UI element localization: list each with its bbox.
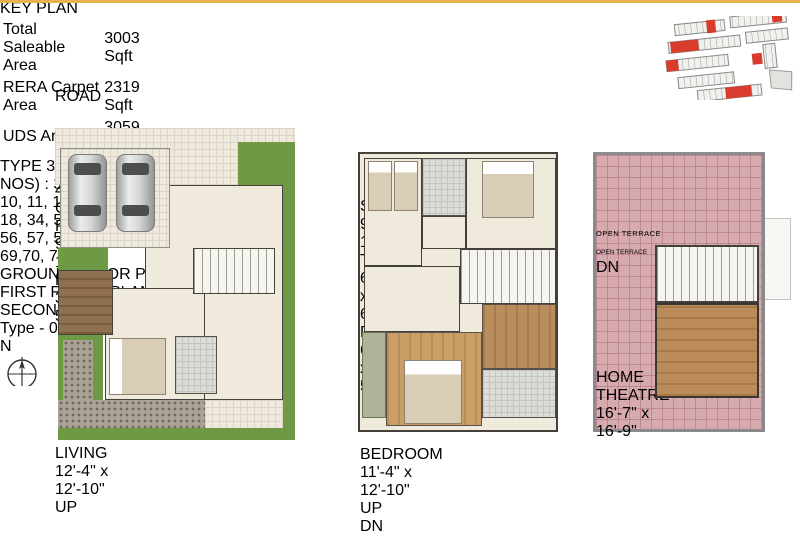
room-label-open-terrace: OPEN TERRACE xyxy=(596,223,688,241)
road-label: ROAD xyxy=(55,88,101,105)
second-floor-plan: OPEN TERRACE OPEN TERRACE DN HOME THEATR… xyxy=(593,152,765,432)
plant-icon xyxy=(596,155,613,172)
gravel-band xyxy=(58,400,205,428)
stairs-dn-label: DN xyxy=(596,259,618,277)
car-rear-window xyxy=(74,205,101,216)
toilet-area xyxy=(482,369,556,418)
bed-icon xyxy=(368,161,392,211)
car-icon xyxy=(116,154,155,232)
toilet-area xyxy=(175,336,217,394)
bed-icon xyxy=(109,338,166,395)
pergola-ledge xyxy=(763,218,791,300)
stairs xyxy=(655,245,759,303)
table-row: Total Saleable Area 3003 Sqft xyxy=(2,20,156,76)
room-label-living: LIVING 12'-4" x 12'-10" xyxy=(55,445,115,499)
stairs-dn-label: DN xyxy=(360,518,380,536)
compass-icon xyxy=(0,356,44,386)
first-floor-plan: STUDY 9'-6" x 12'-10" TOILET 6'-0" x 6'-… xyxy=(358,152,558,432)
floorplan-sheet: KEY PLAN Total Saleable Area 3003 Sqft R… xyxy=(0,0,800,537)
ground-floor-plan: ROAD 39'-4" 7'-3" 2'-6" 4'-11" CAR PORCH… xyxy=(55,88,295,445)
room-label-bedroom: BEDROOM 11'-4" x 12'-10" xyxy=(360,446,440,500)
dress-room xyxy=(482,304,556,369)
dress-room xyxy=(422,216,466,249)
open-deck-area xyxy=(58,270,113,335)
room-label-open-terrace: OPEN TERRACE xyxy=(596,241,658,259)
plant-icon xyxy=(596,172,613,189)
north-label: N xyxy=(0,338,44,356)
car-icon xyxy=(68,154,107,232)
sofa-icon xyxy=(596,277,622,299)
paved-walkway xyxy=(205,400,283,428)
car-windshield xyxy=(74,163,101,175)
stairs xyxy=(193,248,275,294)
lawn-patch xyxy=(58,248,108,270)
bed-icon xyxy=(404,360,462,424)
stairs xyxy=(460,249,556,304)
stairs-up-label: UP xyxy=(360,500,380,518)
sofa-icon xyxy=(596,323,622,345)
sofa-icon xyxy=(596,345,654,369)
gold-top-border xyxy=(0,0,800,3)
balcony-area xyxy=(362,332,386,418)
lawn-strip-top xyxy=(238,142,295,185)
stairs-up-label: UP xyxy=(55,499,75,517)
north-compass: N xyxy=(0,338,44,378)
sofa-icon xyxy=(596,299,654,323)
site-map xyxy=(664,16,798,100)
car-windshield xyxy=(122,163,149,175)
lawn-strip-right xyxy=(281,185,295,430)
bed-icon xyxy=(482,161,534,218)
toilet-area xyxy=(422,158,466,216)
road-band: ROAD xyxy=(55,88,295,128)
home-theatre-room xyxy=(655,303,759,398)
plant-icon xyxy=(596,206,613,223)
family-room xyxy=(364,266,460,332)
dining-table-icon xyxy=(55,517,101,537)
car-rear-window xyxy=(122,205,149,216)
area-value: 3003 Sqft xyxy=(103,20,156,76)
plant-icon xyxy=(596,189,613,206)
lawn-band-bottom xyxy=(58,428,295,440)
bed-icon xyxy=(394,161,418,211)
area-label: Total Saleable Area xyxy=(2,20,101,76)
